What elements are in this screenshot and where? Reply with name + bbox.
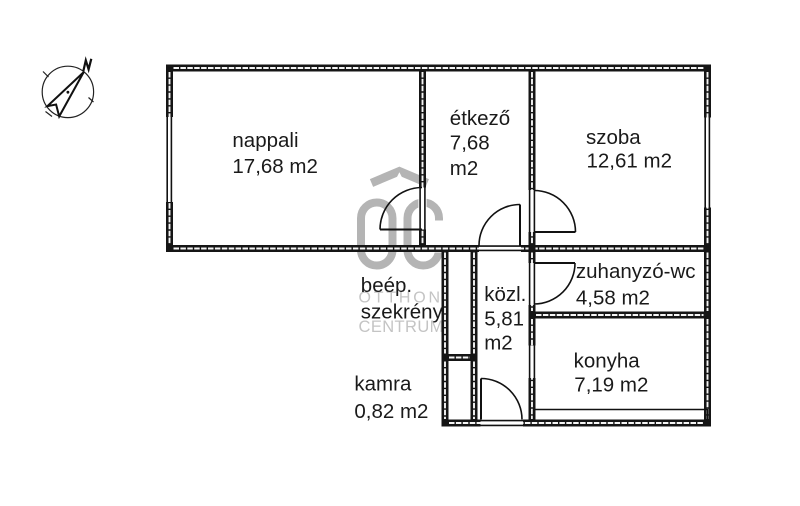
svg-text:nappali: nappali: [232, 129, 298, 152]
svg-text:0,82 m2: 0,82 m2: [354, 400, 428, 423]
svg-text:5,81: 5,81: [484, 308, 524, 331]
svg-text:7,19 m2: 7,19 m2: [574, 374, 648, 397]
svg-text:17,68 m2: 17,68 m2: [232, 155, 317, 178]
svg-text:étkező: étkező: [450, 107, 510, 130]
svg-text:m2: m2: [450, 157, 478, 180]
svg-text:beép.: beép.: [361, 274, 412, 297]
svg-text:szekrény: szekrény: [361, 301, 444, 324]
svg-text:konyha: konyha: [574, 349, 641, 372]
svg-text:zuhanyzó-wc: zuhanyzó-wc: [576, 260, 696, 283]
svg-text:m2: m2: [484, 332, 512, 355]
svg-text:7,68: 7,68: [450, 132, 490, 155]
svg-text:közl.: közl.: [484, 283, 526, 306]
svg-text:kamra: kamra: [354, 373, 412, 396]
svg-text:4,58 m2: 4,58 m2: [576, 287, 650, 310]
svg-text:12,61 m2: 12,61 m2: [587, 150, 672, 173]
svg-text:szoba: szoba: [586, 126, 641, 149]
